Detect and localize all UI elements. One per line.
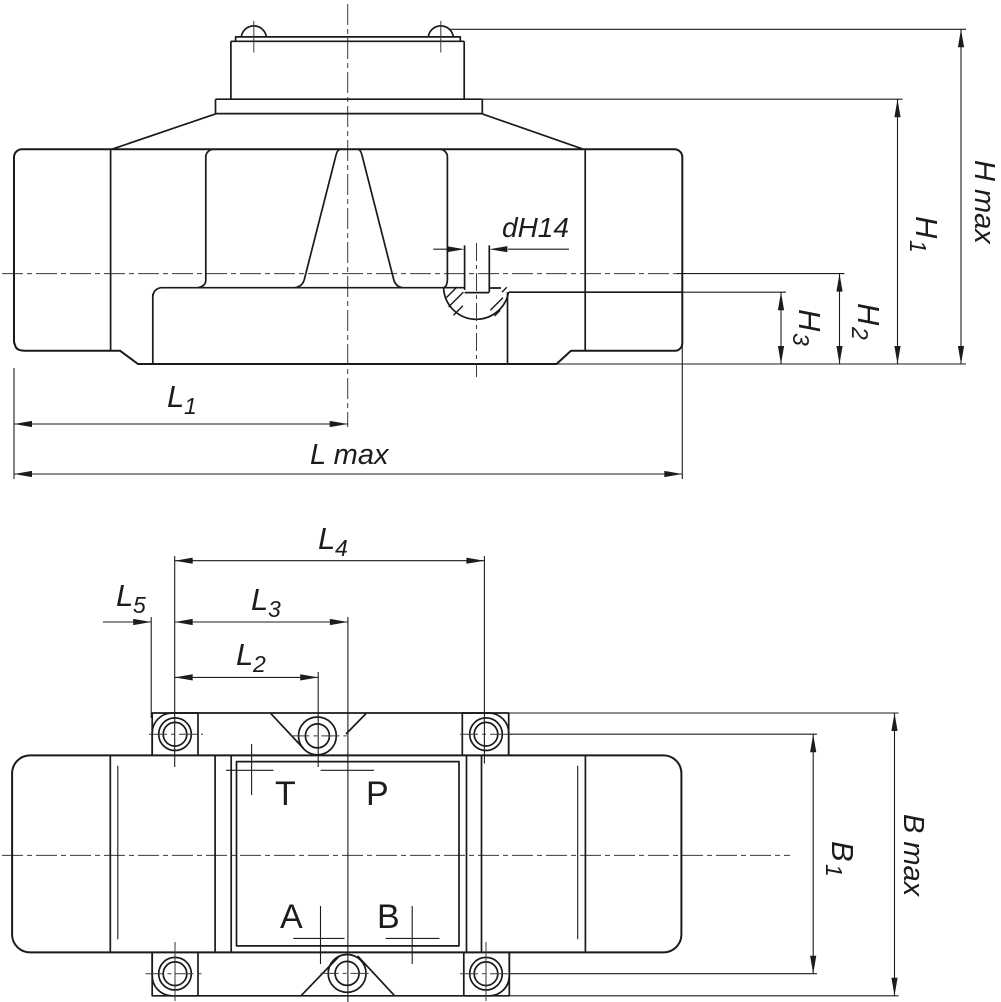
svg-text:T: T xyxy=(275,775,296,813)
svg-text:H: H xyxy=(909,216,944,239)
svg-text:L: L xyxy=(251,582,268,617)
svg-text:L max: L max xyxy=(310,439,390,471)
svg-text:B max: B max xyxy=(897,814,929,898)
svg-text:H: H xyxy=(792,309,827,332)
svg-text:dH14: dH14 xyxy=(502,212,569,243)
svg-text:4: 4 xyxy=(335,535,348,561)
svg-text:3: 3 xyxy=(268,596,281,622)
svg-text:2: 2 xyxy=(252,651,266,677)
svg-text:L: L xyxy=(236,637,253,672)
svg-text:L: L xyxy=(318,521,335,556)
svg-text:P: P xyxy=(366,775,389,813)
svg-text:A: A xyxy=(280,898,303,936)
svg-text:2: 2 xyxy=(847,326,873,340)
svg-text:L: L xyxy=(116,578,133,613)
svg-text:5: 5 xyxy=(133,592,146,618)
svg-text:B: B xyxy=(825,841,860,862)
svg-text:B: B xyxy=(377,898,400,936)
svg-text:1: 1 xyxy=(905,240,931,253)
svg-text:1: 1 xyxy=(184,393,197,419)
svg-text:L: L xyxy=(167,379,184,414)
svg-text:H max: H max xyxy=(968,160,1000,245)
svg-text:3: 3 xyxy=(788,333,814,346)
svg-text:H: H xyxy=(851,303,886,326)
svg-text:1: 1 xyxy=(821,864,847,877)
